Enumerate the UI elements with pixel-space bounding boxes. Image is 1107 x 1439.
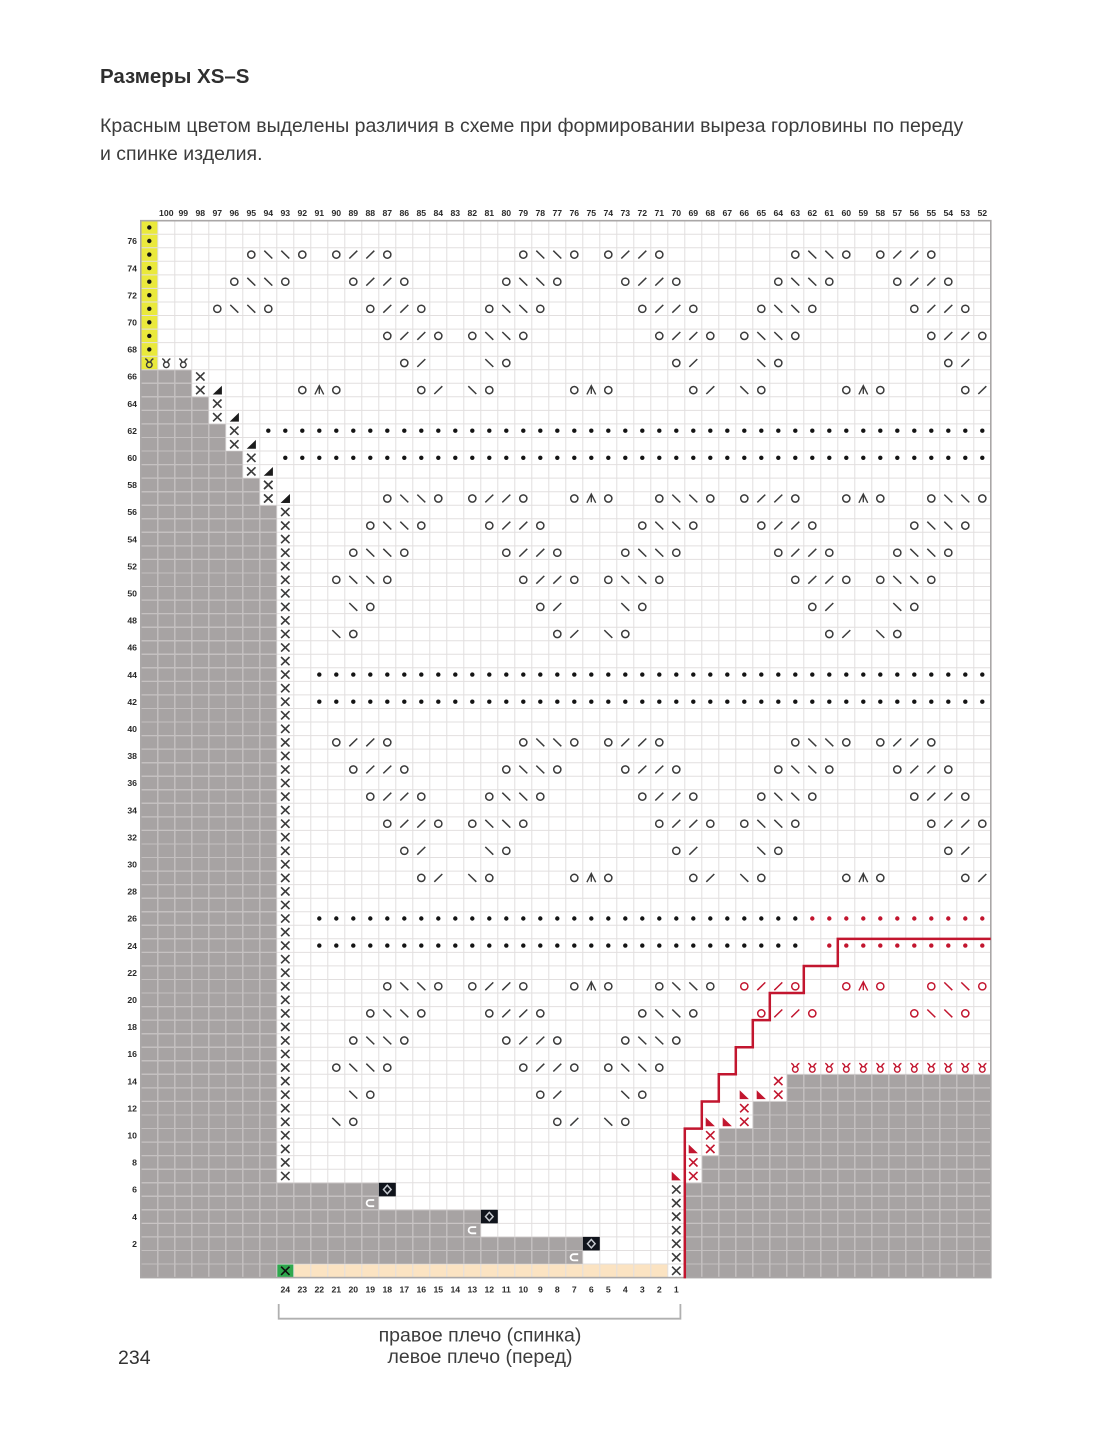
svg-text:48: 48 <box>127 616 137 626</box>
svg-text:70: 70 <box>127 318 137 328</box>
svg-text:63: 63 <box>790 208 800 218</box>
svg-text:23: 23 <box>297 1285 307 1295</box>
svg-text:62: 62 <box>127 426 137 436</box>
svg-text:71: 71 <box>654 208 664 218</box>
svg-text:67: 67 <box>722 208 732 218</box>
svg-text:76: 76 <box>569 208 579 218</box>
svg-text:12: 12 <box>484 1285 494 1295</box>
svg-text:и спинке изделия.: и спинке изделия. <box>100 143 263 165</box>
svg-text:5: 5 <box>606 1285 611 1295</box>
svg-text:42: 42 <box>127 697 137 707</box>
svg-text:54: 54 <box>943 208 953 218</box>
svg-text:10: 10 <box>127 1131 137 1141</box>
svg-text:56: 56 <box>127 507 137 517</box>
svg-text:94: 94 <box>263 208 273 218</box>
svg-text:74: 74 <box>603 208 613 218</box>
svg-text:69: 69 <box>688 208 698 218</box>
svg-text:92: 92 <box>297 208 307 218</box>
svg-text:16: 16 <box>127 1049 137 1059</box>
svg-text:34: 34 <box>127 805 137 815</box>
svg-text:3: 3 <box>640 1285 645 1295</box>
svg-text:16: 16 <box>416 1285 426 1295</box>
svg-text:50: 50 <box>127 589 137 599</box>
svg-text:56: 56 <box>909 208 919 218</box>
svg-text:62: 62 <box>807 208 817 218</box>
svg-text:91: 91 <box>314 208 324 218</box>
svg-text:61: 61 <box>824 208 834 218</box>
svg-text:17: 17 <box>399 1285 409 1295</box>
svg-text:90: 90 <box>331 208 341 218</box>
svg-text:20: 20 <box>127 995 137 1005</box>
svg-text:32: 32 <box>127 832 137 842</box>
svg-text:66: 66 <box>739 208 749 218</box>
svg-text:22: 22 <box>127 968 137 978</box>
svg-text:58: 58 <box>875 208 885 218</box>
svg-text:52: 52 <box>127 561 137 571</box>
svg-text:24: 24 <box>280 1285 290 1295</box>
svg-text:6: 6 <box>589 1285 594 1295</box>
svg-text:55: 55 <box>926 208 936 218</box>
svg-text:15: 15 <box>433 1285 443 1295</box>
svg-text:6: 6 <box>132 1185 137 1195</box>
svg-text:38: 38 <box>127 751 137 761</box>
svg-text:80: 80 <box>501 208 511 218</box>
svg-text:81: 81 <box>484 208 494 218</box>
svg-text:Красным цветом выделены различ: Красным цветом выделены различия в схеме… <box>100 115 963 137</box>
svg-text:65: 65 <box>756 208 766 218</box>
svg-text:60: 60 <box>841 208 851 218</box>
svg-text:59: 59 <box>858 208 868 218</box>
svg-text:72: 72 <box>637 208 647 218</box>
svg-text:66: 66 <box>127 372 137 382</box>
svg-text:96: 96 <box>229 208 239 218</box>
svg-text:18: 18 <box>382 1285 392 1295</box>
svg-text:73: 73 <box>620 208 630 218</box>
svg-text:97: 97 <box>212 208 222 218</box>
svg-text:99: 99 <box>178 208 188 218</box>
svg-text:54: 54 <box>127 534 137 544</box>
svg-text:Размеры XS–S: Размеры XS–S <box>100 65 249 88</box>
svg-text:24: 24 <box>127 941 137 951</box>
svg-text:18: 18 <box>127 1022 137 1032</box>
svg-text:82: 82 <box>467 208 477 218</box>
svg-text:64: 64 <box>773 208 783 218</box>
svg-text:40: 40 <box>127 724 137 734</box>
svg-text:234: 234 <box>118 1347 151 1369</box>
svg-text:8: 8 <box>132 1158 137 1168</box>
svg-text:85: 85 <box>416 208 426 218</box>
svg-text:30: 30 <box>127 860 137 870</box>
svg-text:76: 76 <box>127 236 137 246</box>
svg-text:53: 53 <box>960 208 970 218</box>
svg-text:68: 68 <box>127 345 137 355</box>
svg-text:2: 2 <box>132 1239 137 1249</box>
svg-text:72: 72 <box>127 290 137 300</box>
svg-text:20: 20 <box>348 1285 358 1295</box>
svg-text:78: 78 <box>535 208 545 218</box>
svg-text:64: 64 <box>127 399 137 409</box>
svg-text:87: 87 <box>382 208 392 218</box>
svg-text:правое плечо (спинка): правое плечо (спинка) <box>379 1325 582 1347</box>
svg-text:68: 68 <box>705 208 715 218</box>
svg-text:26: 26 <box>127 914 137 924</box>
svg-text:86: 86 <box>399 208 409 218</box>
svg-text:88: 88 <box>365 208 375 218</box>
svg-text:77: 77 <box>552 208 562 218</box>
svg-text:36: 36 <box>127 778 137 788</box>
svg-text:60: 60 <box>127 453 137 463</box>
svg-text:10: 10 <box>518 1285 528 1295</box>
svg-text:93: 93 <box>280 208 290 218</box>
svg-text:70: 70 <box>671 208 681 218</box>
svg-text:19: 19 <box>365 1285 375 1295</box>
svg-text:21: 21 <box>331 1285 341 1295</box>
svg-text:58: 58 <box>127 480 137 490</box>
svg-text:44: 44 <box>127 670 137 680</box>
svg-text:12: 12 <box>127 1103 137 1113</box>
svg-text:1: 1 <box>674 1285 679 1295</box>
svg-text:75: 75 <box>586 208 596 218</box>
svg-text:14: 14 <box>127 1076 137 1086</box>
svg-text:84: 84 <box>433 208 443 218</box>
svg-text:83: 83 <box>450 208 460 218</box>
svg-text:52: 52 <box>977 208 987 218</box>
svg-text:левое плечо (перед): левое плечо (перед) <box>387 1346 572 1368</box>
svg-text:2: 2 <box>657 1285 662 1295</box>
svg-text:9: 9 <box>538 1285 543 1295</box>
svg-text:13: 13 <box>467 1285 477 1295</box>
svg-text:100: 100 <box>159 208 174 218</box>
svg-text:74: 74 <box>127 263 137 273</box>
svg-text:7: 7 <box>572 1285 577 1295</box>
svg-text:89: 89 <box>348 208 358 218</box>
svg-text:4: 4 <box>623 1285 628 1295</box>
svg-text:11: 11 <box>502 1285 511 1295</box>
svg-text:46: 46 <box>127 643 137 653</box>
svg-text:57: 57 <box>892 208 902 218</box>
svg-text:4: 4 <box>132 1212 137 1222</box>
svg-text:8: 8 <box>555 1285 560 1295</box>
svg-text:79: 79 <box>518 208 528 218</box>
svg-text:95: 95 <box>246 208 256 218</box>
svg-text:98: 98 <box>195 208 205 218</box>
svg-text:22: 22 <box>314 1285 324 1295</box>
svg-text:14: 14 <box>450 1285 460 1295</box>
svg-text:28: 28 <box>127 887 137 897</box>
